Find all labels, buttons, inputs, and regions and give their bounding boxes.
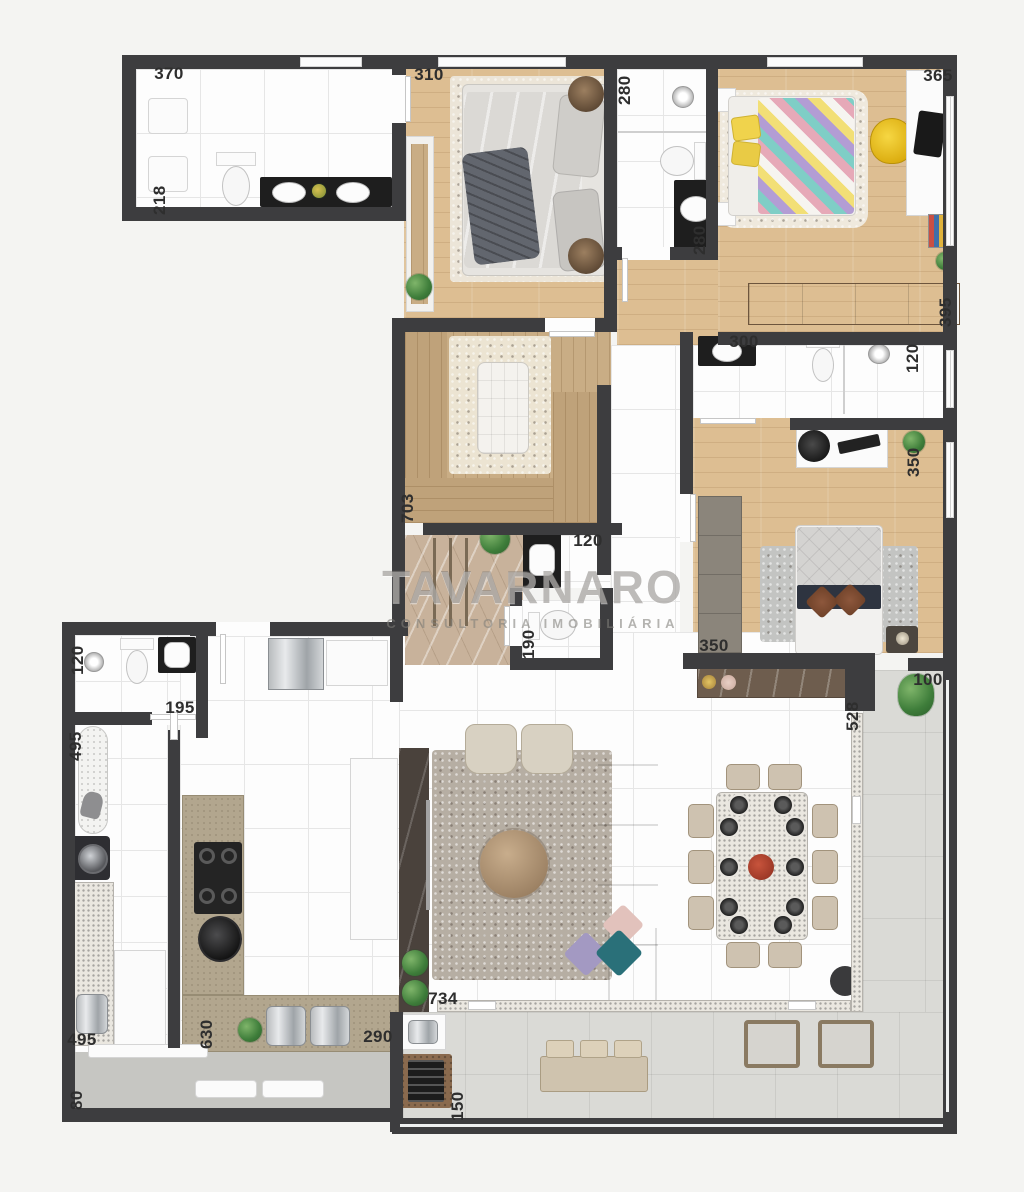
sliding-door-mark <box>788 1001 816 1010</box>
corridor-bedroom3-floor <box>617 260 718 345</box>
stool <box>614 1040 642 1058</box>
door-gap <box>622 247 670 260</box>
decor-plate <box>721 675 736 690</box>
hall-closet-rail <box>449 538 452 626</box>
centerpiece <box>748 854 774 880</box>
hall-closet-rail <box>465 538 468 626</box>
burner-icon <box>221 888 237 904</box>
wall <box>390 630 403 702</box>
door-gap <box>545 318 595 332</box>
dining-chair <box>768 942 802 968</box>
burner-icon <box>221 848 237 864</box>
shower-glass <box>843 336 845 414</box>
closet-cabinet <box>553 392 597 522</box>
shower-fixture <box>148 98 188 134</box>
cooking-pot-icon <box>198 916 242 962</box>
shower-head-icon <box>672 86 694 108</box>
corridor-floor <box>611 345 680 653</box>
dim-label-hall-width: 120 <box>566 531 610 551</box>
bed-pillow <box>730 114 761 142</box>
door-leaf <box>690 494 696 542</box>
burner-icon <box>199 888 215 904</box>
window <box>946 442 954 518</box>
wardrobe <box>698 496 742 654</box>
pantry-cabinet <box>350 758 398 940</box>
door-leaf <box>700 418 756 424</box>
plant <box>406 274 432 300</box>
wall-niche <box>300 57 362 67</box>
dining-chair <box>688 804 714 838</box>
hall-closet-rail <box>433 538 436 626</box>
armchair <box>521 724 573 774</box>
place-setting <box>774 796 792 814</box>
place-setting <box>774 916 792 934</box>
entry-bench <box>88 1044 208 1058</box>
door-leaf <box>549 331 595 337</box>
wall <box>196 622 208 738</box>
dim-label-bath2-depth: 280 <box>616 68 634 112</box>
vanity-sink <box>164 642 190 668</box>
kitchen-sink <box>310 1006 350 1046</box>
plant <box>402 950 428 976</box>
outdoor-armchair <box>744 1020 800 1068</box>
place-setting <box>786 898 804 916</box>
closet-ottoman <box>477 362 529 454</box>
dim-label-master-width: 310 <box>407 65 451 85</box>
wall-niche <box>767 57 863 67</box>
kitchen-sink <box>266 1006 306 1046</box>
dim-label-bath3-width: 300 <box>722 332 766 352</box>
toilet-bowl <box>660 146 694 176</box>
toilet-bowl <box>222 166 250 206</box>
toilet-tank <box>216 152 256 166</box>
dim-label-corridor-width: 80 <box>68 1080 86 1120</box>
window <box>946 350 954 408</box>
toilet-tank <box>120 638 154 650</box>
lavabo-sink <box>529 544 555 576</box>
dim-label-service-bath-depth: 120 <box>68 638 88 682</box>
dining-chair <box>688 896 714 930</box>
laundry-cabinet <box>114 950 166 1046</box>
door-leaf <box>220 634 226 684</box>
wall <box>62 1108 394 1122</box>
dim-label-wc-depth: 190 <box>519 622 539 666</box>
dim-label-balcony-stub: 100 <box>906 670 950 690</box>
wall-niche <box>438 57 566 67</box>
dining-chair <box>726 942 760 968</box>
sliding-door-mark <box>468 1001 496 1010</box>
dim-label-bedroom2-depth: 350 <box>904 440 924 484</box>
dim-label-balcony-opening: 528 <box>843 694 863 738</box>
burner-icon <box>199 848 215 864</box>
wall <box>392 318 405 628</box>
bed-pillow <box>731 140 762 167</box>
toilet-tank <box>694 142 706 180</box>
wall <box>122 55 136 221</box>
shower-head-icon <box>868 344 890 364</box>
chevron-duvet <box>758 98 854 214</box>
dim-label-closet-length: 703 <box>399 486 417 530</box>
door-gap <box>392 75 406 123</box>
wall <box>62 622 208 635</box>
stool <box>580 1040 608 1058</box>
plant <box>312 184 326 198</box>
doormat <box>262 1080 324 1098</box>
dining-chair <box>812 896 838 930</box>
dining-chair <box>768 764 802 790</box>
place-setting <box>730 796 748 814</box>
dim-label-bath-suite-width: 370 <box>147 64 191 84</box>
coffee-table <box>480 830 548 898</box>
dining-chair <box>812 804 838 838</box>
place-setting <box>720 898 738 916</box>
armchair <box>465 724 517 774</box>
toilet-bowl <box>540 610 576 640</box>
place-setting <box>720 858 738 876</box>
place-setting <box>730 916 748 934</box>
dresser <box>748 283 960 325</box>
bed-duvet-quilted <box>797 527 881 587</box>
balcony-glass-railing <box>946 680 949 1112</box>
dining-chair <box>688 850 714 884</box>
toilet-bowl <box>812 348 834 382</box>
balcony-bench <box>540 1056 648 1092</box>
plant <box>238 1018 262 1042</box>
stool <box>546 1040 574 1058</box>
decor-vase <box>702 675 716 689</box>
balcony-glass-railing <box>400 1124 943 1127</box>
dim-label-laundry-length: 495 <box>67 724 85 768</box>
outdoor-armchair <box>818 1020 874 1068</box>
dim-label-bedroom2-width: 350 <box>692 636 736 656</box>
dim-label-balcony-depth: 150 <box>448 1084 468 1128</box>
round-pouf <box>568 238 604 274</box>
outdoor-sink <box>408 1020 438 1044</box>
kitchen-cabinet <box>326 640 388 686</box>
dining-chair <box>812 850 838 884</box>
dim-label-bath-suite-depth: 218 <box>150 178 170 222</box>
door-leaf <box>622 258 628 302</box>
place-setting <box>786 818 804 836</box>
doormat <box>195 1080 257 1098</box>
window <box>946 96 954 246</box>
dining-chair <box>726 764 760 790</box>
dim-label-bath3-depth: 120 <box>904 338 922 378</box>
dim-label-bedroom3-width: 365 <box>916 66 960 86</box>
dim-label-living-width: 734 <box>421 989 465 1009</box>
washer-drum-icon <box>78 844 108 874</box>
floor-plan-canvas: 370 218 310 280 365 280 395 300 120 350 … <box>0 0 1024 1192</box>
wall <box>168 730 180 1048</box>
grill-grate-icon <box>408 1060 444 1102</box>
laundry-sink <box>76 994 108 1034</box>
tv-icon <box>426 800 430 910</box>
dim-label-service-bath-width: 195 <box>158 698 202 718</box>
vanity-sink <box>272 182 306 203</box>
dim-label-bath2-width: 280 <box>690 218 710 262</box>
place-setting <box>720 818 738 836</box>
toilet-bowl <box>126 650 148 684</box>
table-lamp-icon <box>896 632 909 645</box>
dim-label-kitchen-length: 630 <box>197 1012 217 1056</box>
vanity-sink <box>336 182 370 203</box>
round-pouf <box>568 76 604 112</box>
balcony-threshold <box>851 713 863 1012</box>
master-bed-throw <box>461 146 540 265</box>
office-chair <box>798 430 830 462</box>
dim-label-kitchen-width: 290 <box>356 1027 400 1047</box>
fridge <box>268 638 324 690</box>
shower-glass <box>618 131 706 133</box>
place-setting <box>786 858 804 876</box>
dim-label-laundry-width: 495 <box>60 1030 104 1050</box>
sliding-door-mark <box>852 796 861 824</box>
wall <box>790 418 943 430</box>
door-leaf <box>504 606 510 646</box>
dim-label-bedroom3-depth: 395 <box>936 290 956 334</box>
